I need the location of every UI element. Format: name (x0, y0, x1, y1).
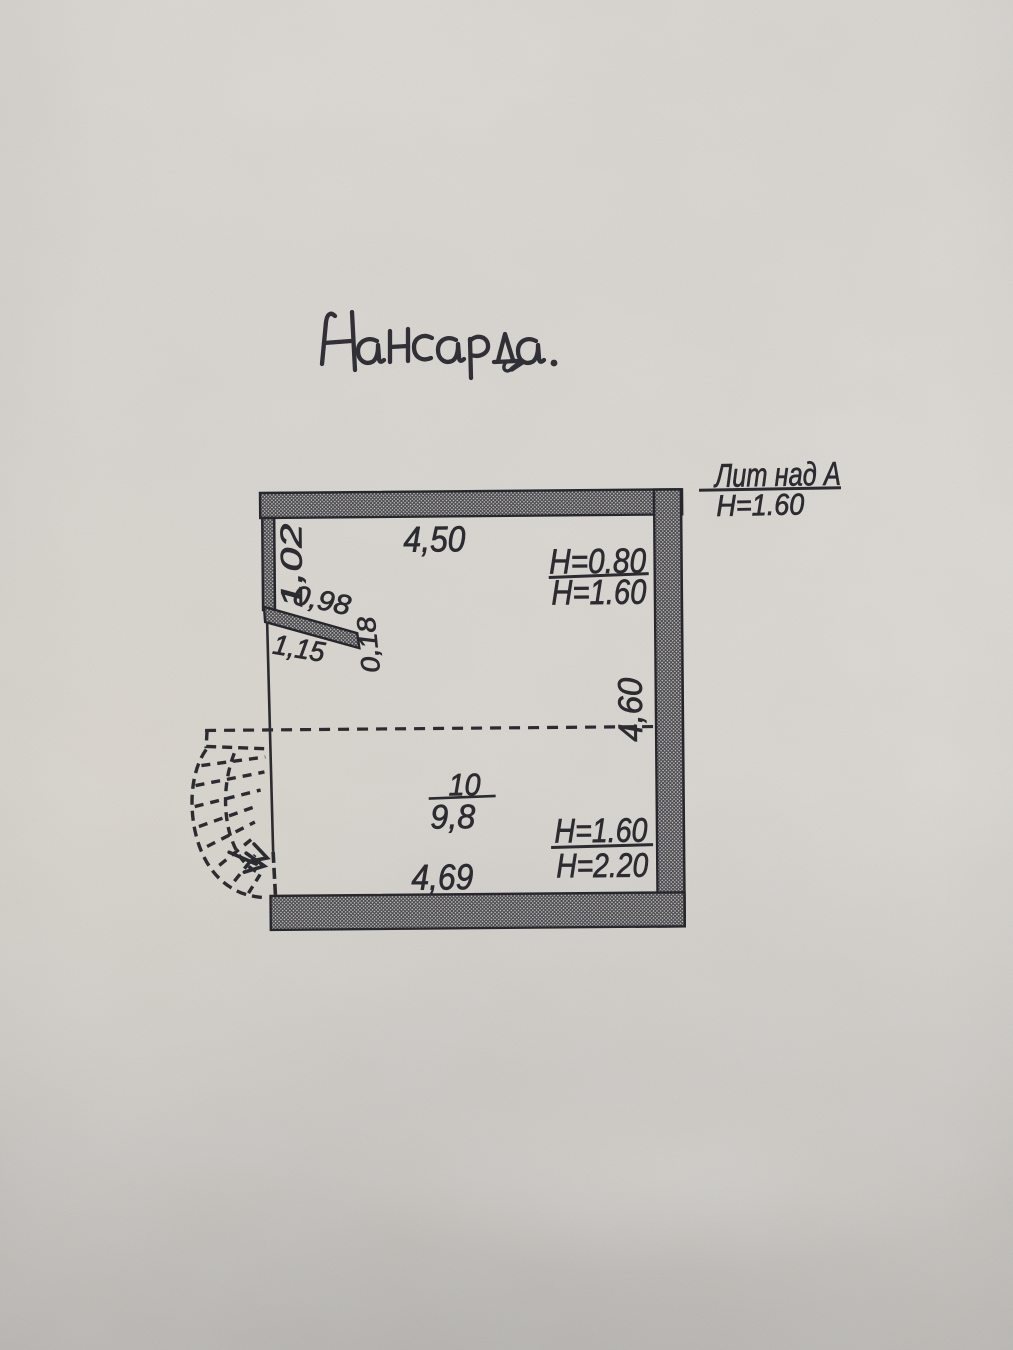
svg-text:Н=1.60: Н=1.60 (716, 488, 805, 523)
svg-text:0,18: 0,18 (351, 615, 386, 674)
svg-text:9,8: 9,8 (430, 798, 475, 836)
svg-text:4,50: 4,50 (403, 518, 465, 560)
svg-text:Н=1.60: Н=1.60 (551, 573, 647, 613)
svg-text:4,60: 4,60 (612, 678, 651, 742)
svg-text:Н=2.20: Н=2.20 (556, 847, 648, 886)
svg-text:4,69: 4,69 (411, 856, 473, 898)
